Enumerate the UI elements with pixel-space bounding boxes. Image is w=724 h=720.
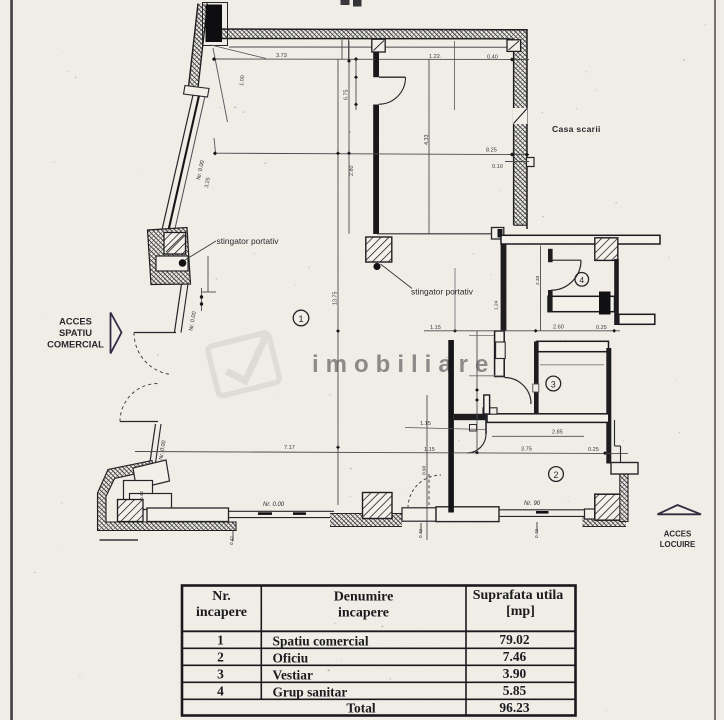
svg-text:4: 4 — [579, 275, 584, 285]
svg-text:2.60: 2.60 — [553, 325, 564, 331]
svg-text:96.23: 96.23 — [499, 700, 529, 715]
svg-text:1: 1 — [298, 314, 303, 325]
svg-text:0.25: 0.25 — [588, 447, 599, 453]
svg-text:Grup sanitar: Grup sanitar — [273, 685, 348, 700]
svg-text:Nr. 0.00: Nr. 0.00 — [263, 502, 285, 508]
svg-text:5.85: 5.85 — [503, 683, 527, 698]
svg-text:LOCUIRE: LOCUIRE — [660, 540, 696, 549]
svg-text:ACCES: ACCES — [664, 530, 692, 539]
svg-text:Oficiu: Oficiu — [273, 651, 309, 666]
svg-text:0.40: 0.40 — [487, 55, 498, 61]
svg-text:8.25: 8.25 — [486, 148, 497, 154]
svg-text:1.22: 1.22 — [429, 54, 440, 60]
svg-text:ACCES: ACCES — [59, 316, 92, 327]
svg-text:Suprafata utila: Suprafata utila — [473, 588, 564, 603]
svg-text:0.25: 0.25 — [596, 325, 607, 331]
svg-text:0.42: 0.42 — [418, 529, 423, 538]
svg-text:Casa scarii: Casa scarii — [552, 124, 601, 134]
svg-text:Total: Total — [346, 701, 376, 716]
svg-text:COMERCIAL: COMERCIAL — [47, 339, 104, 350]
svg-text:stingator portativ: stingator portativ — [411, 287, 474, 297]
svg-text:1.00: 1.00 — [239, 75, 246, 86]
svg-text:3: 3 — [217, 667, 224, 682]
svg-text:2.33: 2.33 — [535, 275, 541, 285]
svg-text:2.80: 2.80 — [349, 166, 355, 177]
svg-text:2: 2 — [553, 470, 558, 480]
svg-text:3.90: 3.90 — [503, 666, 527, 681]
svg-text:imobiliare: imobiliare — [312, 351, 495, 378]
svg-text:Denumire: Denumire — [334, 590, 394, 605]
svg-text:1: 1 — [217, 633, 224, 648]
svg-text:1.15: 1.15 — [430, 325, 441, 331]
svg-text:0.42: 0.42 — [534, 529, 539, 538]
svg-text:3.75: 3.75 — [521, 447, 532, 453]
svg-text:Nr.: Nr. — [212, 589, 231, 604]
svg-text:6.75: 6.75 — [344, 90, 350, 101]
svg-text:4.33: 4.33 — [424, 135, 430, 146]
svg-text:13.75: 13.75 — [332, 292, 338, 306]
svg-text:SPATIU: SPATIU — [59, 327, 92, 338]
svg-text:3: 3 — [551, 379, 556, 389]
svg-text:stingator portativ: stingator portativ — [217, 236, 280, 246]
svg-text:1.15: 1.15 — [424, 447, 435, 453]
svg-text:0.10: 0.10 — [492, 164, 503, 170]
svg-text:2.85: 2.85 — [552, 430, 563, 436]
svg-text:2: 2 — [217, 650, 224, 665]
svg-text:Nr. 90: Nr. 90 — [524, 501, 541, 507]
svg-text:Vestiar: Vestiar — [273, 668, 313, 683]
svg-text:incapere: incapere — [338, 606, 389, 621]
svg-text:1.15: 1.15 — [420, 421, 431, 427]
svg-text:1.24: 1.24 — [494, 300, 500, 310]
svg-text:0.90: 0.90 — [422, 465, 428, 475]
svg-text:3.73: 3.73 — [276, 53, 287, 59]
svg-text:0.42: 0.42 — [139, 491, 144, 500]
svg-text:Spatiu comercial: Spatiu comercial — [273, 634, 369, 649]
svg-text:7.46: 7.46 — [503, 649, 527, 664]
svg-text:7.17: 7.17 — [284, 445, 295, 451]
svg-text:incapere: incapere — [196, 605, 247, 620]
svg-text:[mp]: [mp] — [506, 604, 535, 619]
svg-text:79.02: 79.02 — [499, 632, 529, 647]
svg-text:4: 4 — [217, 684, 224, 699]
